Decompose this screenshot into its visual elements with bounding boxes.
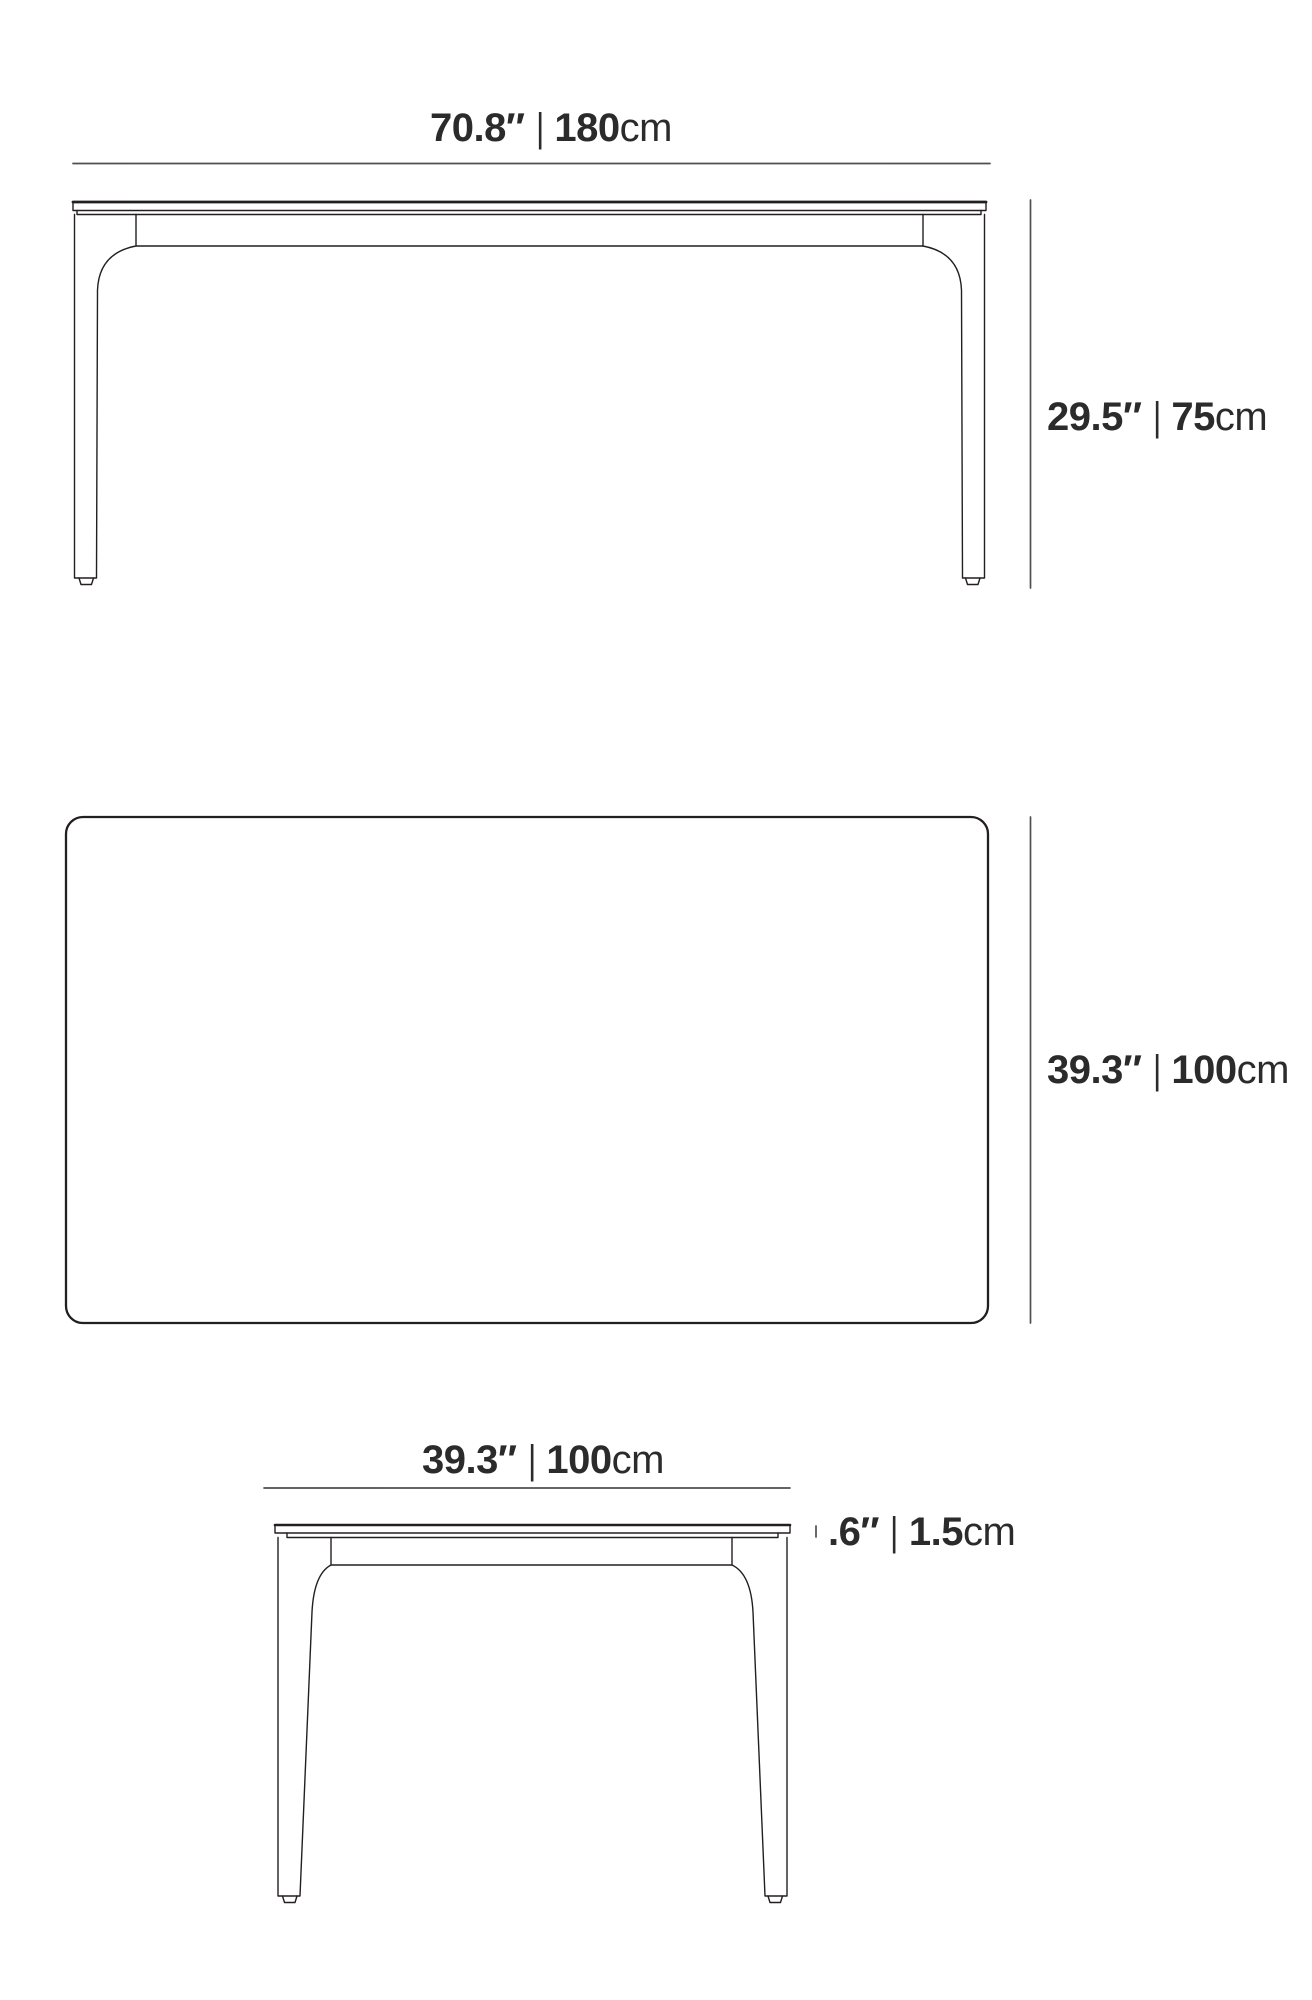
front-height-inches: 29.5″ [1047,395,1142,439]
side-right-leg [732,1538,787,1897]
top-depth-label: 39.3″|100cm [1047,1050,1289,1090]
side-width-cm-unit: cm [612,1438,664,1482]
side-view-drawing [264,1488,816,1903]
side-left-leg [278,1538,331,1897]
side-width-cm-value: 100 [546,1438,611,1482]
side-thickness-separator: | [890,1512,898,1552]
front-width-separator: | [536,108,544,148]
side-thickness-cm-value: 1.5 [909,1510,963,1554]
top-tabletop-outline [66,817,988,1323]
side-thickness-label: .6″|1.5cm [828,1512,1015,1552]
side-width-separator: | [528,1440,536,1480]
front-height-cm-unit: cm [1215,395,1267,439]
table-linework [0,0,1312,2000]
side-left-foot [283,1896,298,1903]
front-left-leg [75,215,137,579]
front-width-cm-value: 180 [554,106,619,150]
top-depth-cm-unit: cm [1237,1048,1289,1092]
top-depth-cm-value: 100 [1171,1048,1236,1092]
front-view-drawing [73,164,1031,589]
side-width-inches: 39.3″ [422,1438,517,1482]
front-height-label: 29.5″|75cm [1047,397,1267,437]
front-width-label: 70.8″|180cm [430,108,672,148]
front-height-separator: | [1153,397,1161,437]
side-thickness-cm-unit: cm [963,1510,1015,1554]
top-depth-separator: | [1153,1050,1161,1090]
table-dimension-diagram: 70.8″|180cm 29.5″|75cm 39.3″|100cm 39.3″… [0,0,1312,2000]
side-width-label: 39.3″|100cm [422,1440,664,1480]
front-height-cm-value: 75 [1171,395,1215,439]
side-thickness-inches: .6″ [828,1510,879,1554]
side-right-foot [768,1896,783,1903]
top-depth-inches: 39.3″ [1047,1048,1142,1092]
front-left-foot [79,578,94,585]
front-right-foot [966,578,981,585]
front-width-cm-unit: cm [620,106,672,150]
front-width-inches: 70.8″ [430,106,525,150]
front-right-leg [923,215,985,579]
top-view-drawing [66,817,1031,1323]
